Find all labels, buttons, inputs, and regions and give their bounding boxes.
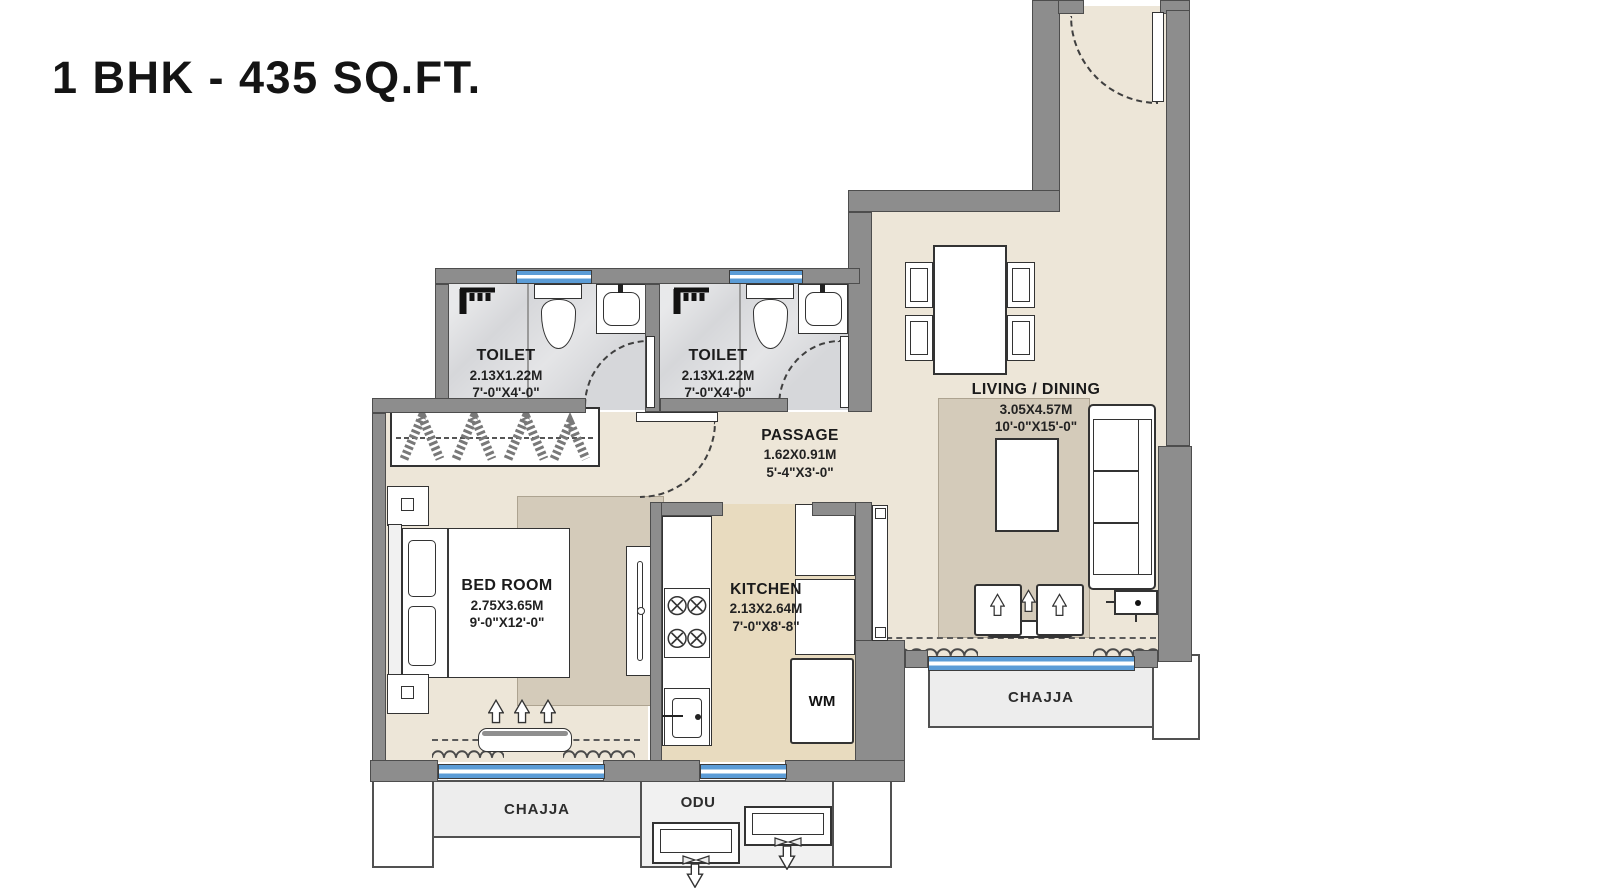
door-hinge-icon: [875, 508, 886, 519]
ac-outdoor-unit: [652, 822, 740, 864]
wall: [1158, 446, 1192, 662]
sofa-side-table: [1114, 590, 1158, 615]
table-lamp-icon: [401, 686, 414, 699]
chair-seat: [910, 268, 928, 302]
arrow-down-icon: [778, 846, 796, 870]
kitchen-window: [700, 764, 787, 779]
bedside-table: [387, 674, 429, 714]
kitchen-sink: [664, 688, 710, 746]
wall: [1058, 0, 1084, 14]
arrow-up-icon: [1052, 592, 1067, 617]
bedroom-label: BED ROOM 2.75X3.65M 9'-0"X12'-0": [437, 576, 577, 632]
coffee-table: [995, 438, 1059, 532]
washbasin-icon: [805, 292, 842, 326]
washing-machine: WM: [790, 658, 854, 744]
ac-outdoor-unit: [744, 806, 832, 846]
wardrobe: [390, 407, 600, 467]
chajja-right: CHAJJA: [928, 666, 1154, 728]
toilet1-window: [516, 270, 592, 284]
wall: [372, 413, 386, 765]
wall: [1133, 650, 1158, 668]
bench-top-line: [482, 731, 568, 736]
shower-icon: [672, 285, 714, 315]
toilet2-door-leaf: [840, 336, 849, 408]
arrow-up-icon: [1021, 588, 1036, 613]
dining-chair: [1007, 315, 1035, 361]
wc-toilet-icon: [746, 284, 794, 299]
kitchen-hob: [664, 588, 710, 658]
bed-headboard: [388, 524, 402, 680]
bed-bench: [478, 728, 572, 752]
chajja-label: CHAJJA: [1008, 689, 1074, 706]
shower-icon: [458, 285, 500, 315]
wall: [848, 190, 1060, 212]
living-label: LIVING / DINING 3.05X4.57M 10'-0"X15'-0": [958, 380, 1114, 436]
sofa-seat: [1093, 523, 1139, 575]
arrow-up-icon: [540, 698, 556, 724]
arrow-down-icon: [686, 864, 704, 888]
sofa-seat: [1093, 471, 1139, 523]
odu-grille: [752, 813, 824, 835]
chair-seat: [1012, 268, 1030, 302]
wall: [650, 502, 662, 762]
wall: [785, 760, 905, 782]
tv-mount-dot: [637, 607, 645, 615]
hob-burners-icon: [665, 589, 708, 656]
wall: [1166, 10, 1190, 446]
wall: [855, 502, 872, 642]
washing-machine-label: WM: [809, 693, 836, 710]
wall: [855, 640, 905, 762]
arrow-up-icon: [488, 698, 504, 724]
wc-toilet-icon: [534, 284, 582, 299]
door-hinge-icon: [875, 627, 886, 638]
column: [1152, 654, 1200, 740]
kitchen-label: KITCHEN 2.13X2.64M 7'-0"X8'-8": [706, 580, 826, 635]
washbasin-counter: [798, 284, 848, 334]
tap-icon: [618, 284, 623, 293]
wardrobe-hangers-icon: [392, 409, 598, 465]
pillow: [408, 540, 436, 597]
floor-plan: 1 BHK - 435 SQ.FT.: [0, 0, 1600, 889]
kitchen-service-door-leaf: [872, 505, 888, 641]
dining-chair: [1007, 262, 1035, 308]
washbasin-icon: [603, 292, 640, 326]
entrance-door-leaf: [1152, 12, 1164, 102]
chair-seat: [910, 321, 928, 355]
bedside-table: [387, 486, 429, 526]
table-lamp-icon: [401, 498, 414, 511]
toilet1-label: TOILET 2.13X1.22M 7'-0"X4'-0": [446, 346, 566, 402]
wall: [848, 212, 872, 412]
wall: [1032, 0, 1060, 196]
column: [832, 780, 892, 868]
wall: [905, 650, 928, 668]
dining-chair: [905, 315, 933, 361]
toilet1-door-leaf: [646, 336, 655, 408]
bedroom-window: [438, 764, 605, 779]
dining-table: [933, 245, 1007, 375]
pillow: [408, 606, 436, 666]
column: [372, 780, 434, 868]
chajja-label: CHAJJA: [504, 801, 570, 818]
living-window: [928, 656, 1135, 671]
odu-label: ODU: [667, 794, 729, 811]
passage-label: PASSAGE 1.62X0.91M 5'-4"X3'-0": [740, 426, 860, 481]
dining-chair: [905, 262, 933, 308]
tap-icon: [820, 284, 825, 293]
wall: [370, 760, 438, 782]
drain-dot: [695, 714, 701, 720]
sofa-backrest: [1138, 419, 1152, 575]
bedroom-door-leaf: [636, 412, 718, 422]
washbasin-counter: [596, 284, 646, 334]
chair-seat: [1012, 321, 1030, 355]
plan-title: 1 BHK - 435 SQ.FT.: [52, 52, 482, 104]
curtain-icon: [563, 748, 635, 759]
arrow-up-icon: [514, 698, 530, 724]
arrow-up-icon: [990, 592, 1005, 617]
toilet2-label: TOILET 2.13X1.22M 7'-0"X4'-0": [658, 346, 778, 402]
table-dot: [1135, 600, 1141, 606]
odu-grille: [660, 829, 732, 853]
toilet2-window: [729, 270, 803, 284]
wall: [603, 760, 700, 782]
chajja-bottom: CHAJJA: [432, 780, 642, 838]
